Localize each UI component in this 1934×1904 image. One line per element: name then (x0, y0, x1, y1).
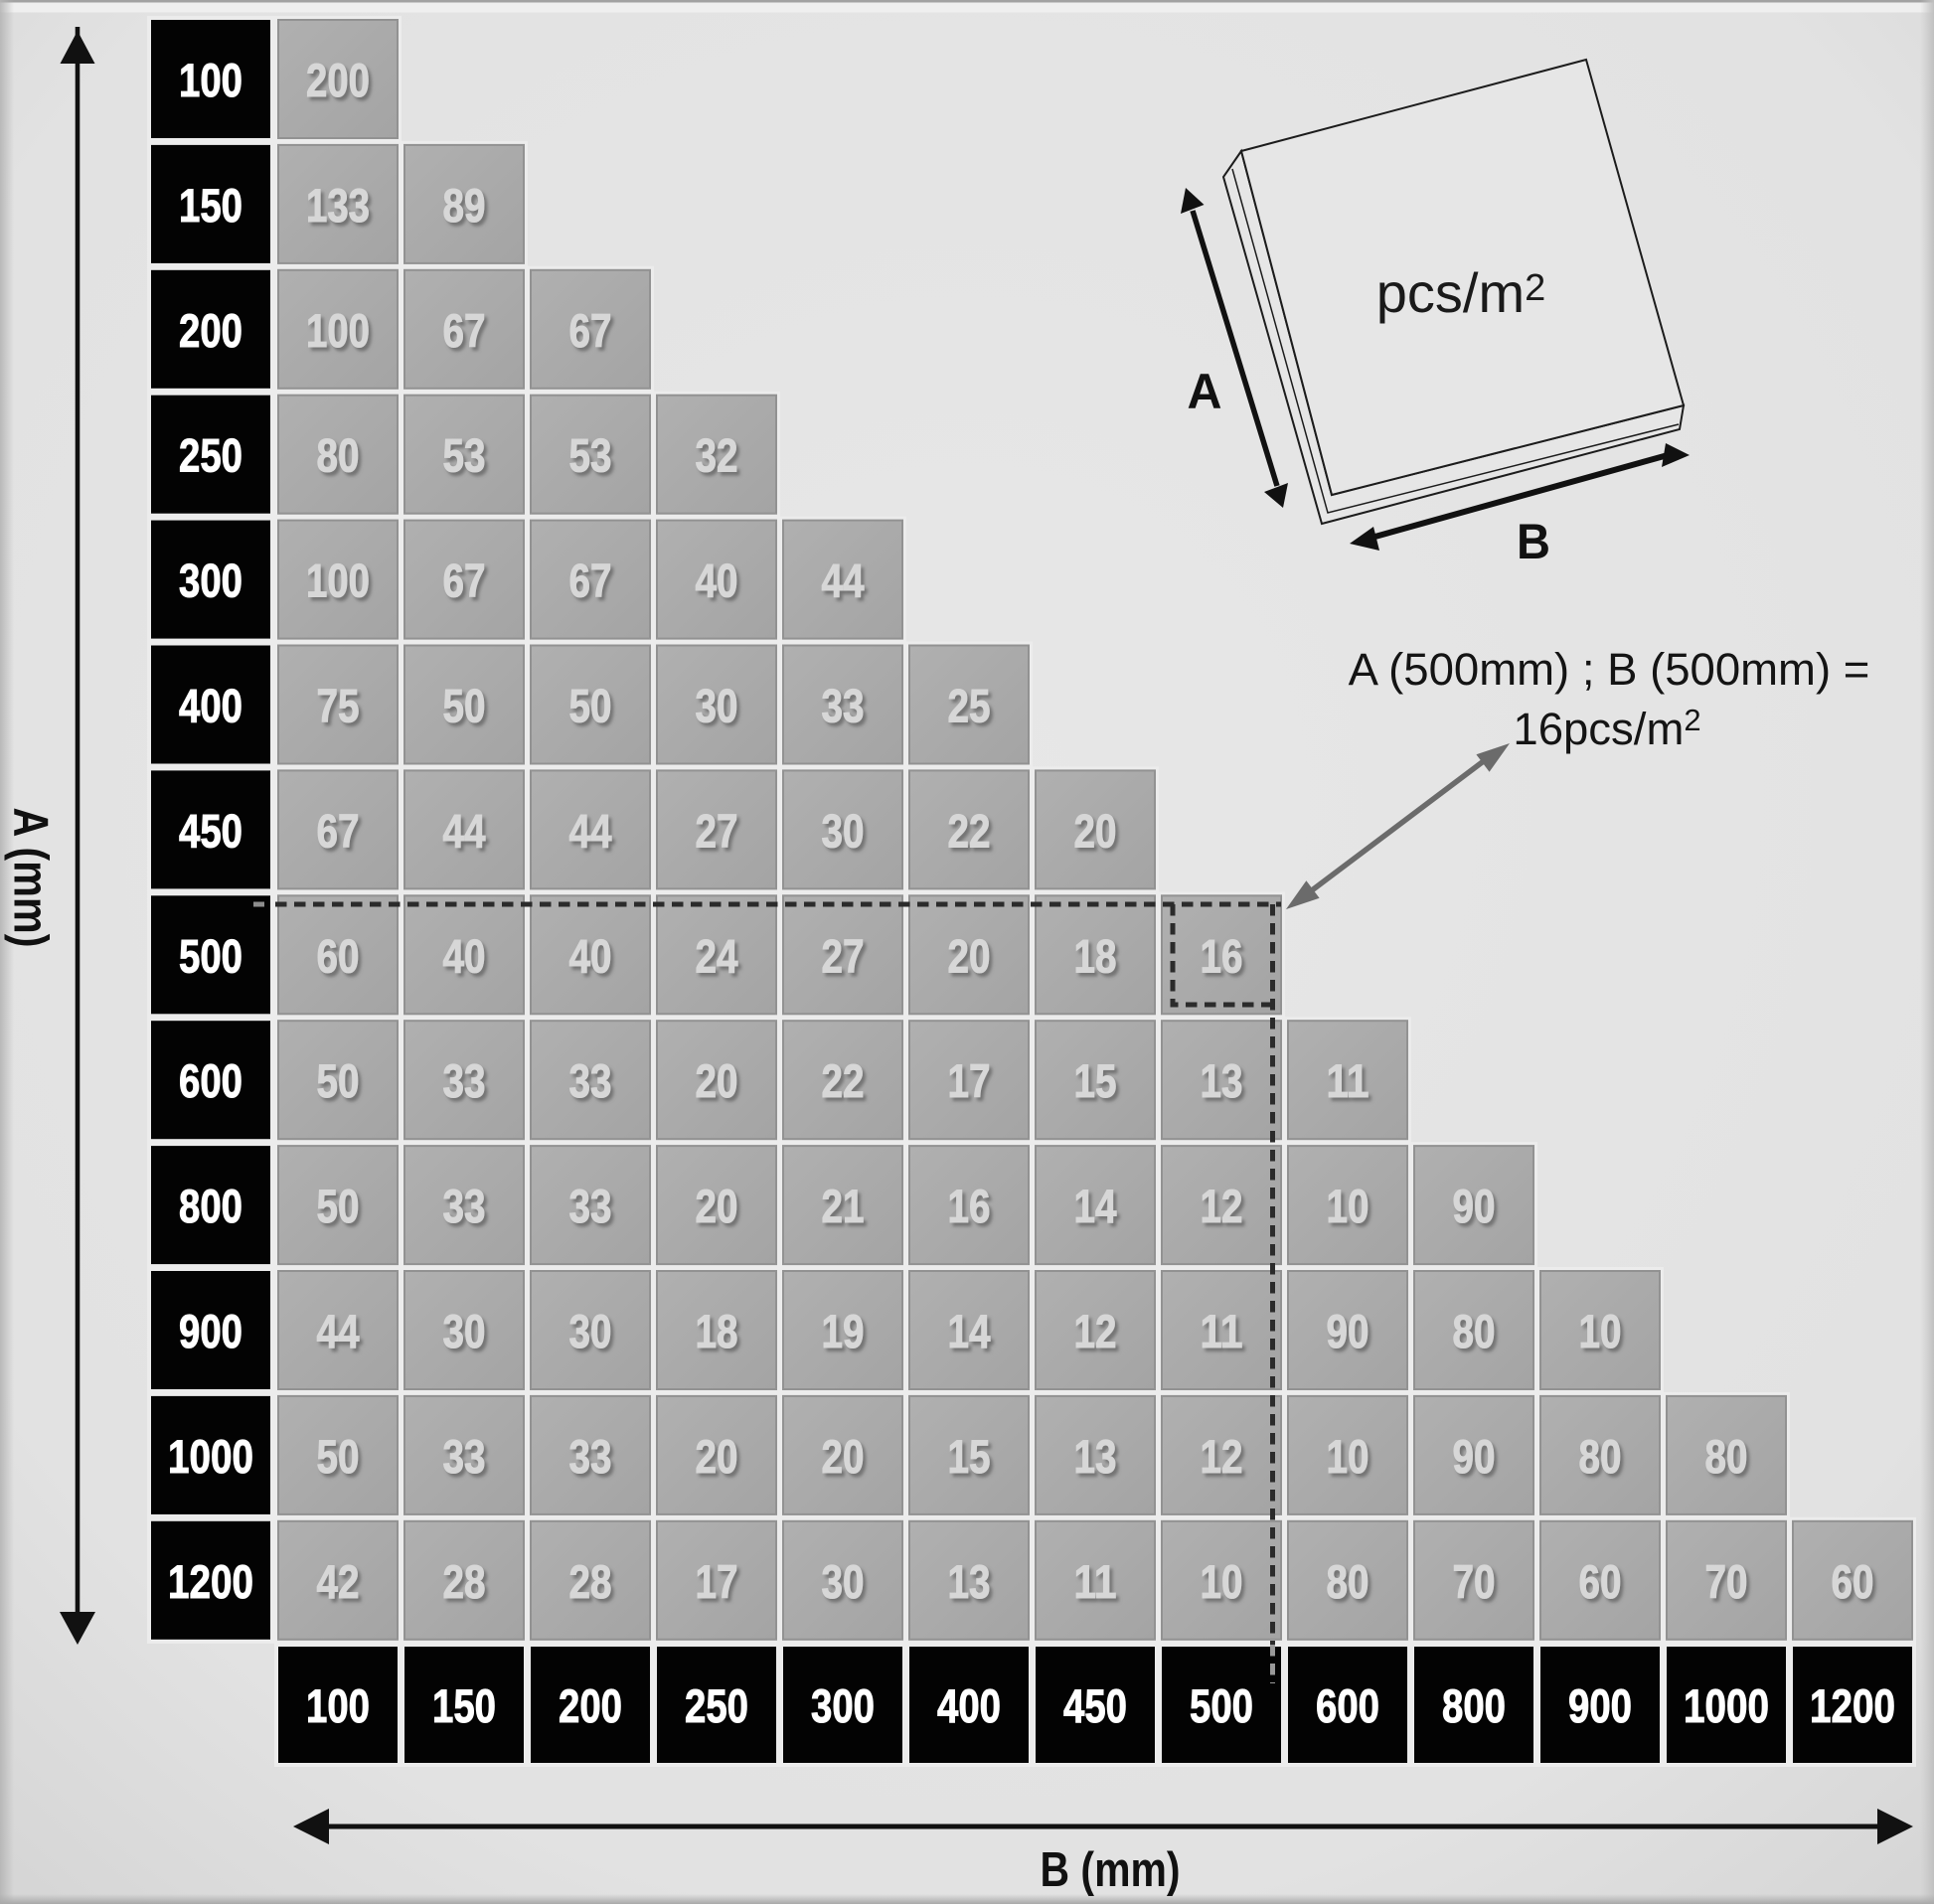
svg-text:20: 20 (696, 1430, 738, 1483)
svg-text:250: 250 (179, 429, 242, 482)
svg-text:500: 500 (179, 929, 242, 982)
svg-text:500: 500 (1190, 1679, 1253, 1732)
svg-text:27: 27 (822, 929, 865, 982)
svg-text:17: 17 (948, 1054, 991, 1107)
svg-text:11: 11 (1327, 1054, 1370, 1107)
svg-text:A (mm): A (mm) (4, 808, 59, 948)
svg-text:60: 60 (1832, 1555, 1874, 1608)
svg-text:44: 44 (443, 804, 486, 857)
svg-text:450: 450 (179, 804, 242, 857)
svg-text:30: 30 (569, 1305, 612, 1357)
svg-text:75: 75 (317, 680, 360, 732)
svg-text:300: 300 (811, 1679, 875, 1732)
svg-text:22: 22 (948, 804, 991, 857)
svg-text:42: 42 (317, 1555, 360, 1608)
svg-text:400: 400 (937, 1679, 1001, 1732)
svg-text:80: 80 (1579, 1430, 1622, 1483)
svg-text:89: 89 (443, 179, 486, 232)
svg-text:50: 50 (317, 1054, 360, 1107)
svg-text:12: 12 (1201, 1430, 1243, 1483)
svg-text:15: 15 (948, 1430, 991, 1483)
svg-text:1200: 1200 (1810, 1679, 1895, 1732)
svg-text:133: 133 (306, 179, 370, 232)
svg-text:150: 150 (432, 1679, 496, 1732)
svg-text:11: 11 (1201, 1305, 1243, 1357)
svg-text:30: 30 (443, 1305, 486, 1357)
svg-text:21: 21 (822, 1180, 865, 1232)
svg-text:33: 33 (569, 1054, 612, 1107)
svg-text:200: 200 (179, 304, 242, 357)
svg-text:30: 30 (696, 680, 738, 732)
svg-text:67: 67 (569, 555, 612, 607)
svg-text:44: 44 (569, 804, 612, 857)
svg-text:600: 600 (1316, 1679, 1379, 1732)
svg-text:80: 80 (1327, 1555, 1370, 1608)
svg-text:80: 80 (317, 429, 360, 482)
svg-text:18: 18 (696, 1305, 738, 1357)
svg-text:30: 30 (822, 1555, 865, 1608)
svg-text:90: 90 (1453, 1430, 1496, 1483)
svg-text:30: 30 (822, 804, 865, 857)
svg-text:67: 67 (443, 555, 486, 607)
svg-text:400: 400 (179, 680, 242, 732)
svg-text:12: 12 (1201, 1180, 1243, 1232)
svg-text:70: 70 (1453, 1555, 1496, 1608)
svg-text:28: 28 (443, 1555, 486, 1608)
svg-text:100: 100 (306, 1679, 370, 1732)
svg-text:33: 33 (569, 1430, 612, 1483)
svg-text:20: 20 (822, 1430, 865, 1483)
svg-text:50: 50 (317, 1430, 360, 1483)
svg-text:33: 33 (443, 1054, 486, 1107)
svg-text:67: 67 (443, 304, 486, 357)
svg-text:13: 13 (948, 1555, 991, 1608)
svg-text:16pcs/m2: 16pcs/m2 (1513, 703, 1700, 754)
svg-text:12: 12 (1074, 1305, 1117, 1357)
svg-text:10: 10 (1201, 1555, 1243, 1608)
svg-text:28: 28 (569, 1555, 612, 1608)
svg-text:50: 50 (443, 680, 486, 732)
svg-text:16: 16 (948, 1180, 991, 1232)
svg-text:90: 90 (1453, 1180, 1496, 1232)
svg-text:20: 20 (1074, 804, 1117, 857)
svg-text:1200: 1200 (168, 1555, 253, 1608)
svg-text:300: 300 (179, 555, 242, 607)
svg-text:80: 80 (1453, 1305, 1496, 1357)
svg-text:10: 10 (1327, 1180, 1370, 1232)
svg-text:14: 14 (1074, 1180, 1117, 1232)
svg-text:900: 900 (179, 1305, 242, 1357)
svg-text:53: 53 (569, 429, 612, 482)
svg-text:90: 90 (1327, 1305, 1370, 1357)
svg-text:50: 50 (569, 680, 612, 732)
svg-text:B: B (1517, 514, 1550, 569)
svg-text:A: A (1188, 364, 1222, 419)
svg-text:200: 200 (559, 1679, 622, 1732)
svg-text:80: 80 (1705, 1430, 1748, 1483)
svg-text:33: 33 (822, 680, 865, 732)
svg-text:40: 40 (569, 929, 612, 982)
svg-text:27: 27 (696, 804, 738, 857)
svg-text:13: 13 (1201, 1054, 1243, 1107)
svg-text:25: 25 (948, 680, 991, 732)
svg-text:B (mm): B (mm) (1041, 1842, 1181, 1897)
svg-text:150: 150 (179, 179, 242, 232)
svg-text:33: 33 (569, 1180, 612, 1232)
svg-text:60: 60 (317, 929, 360, 982)
svg-text:67: 67 (569, 304, 612, 357)
svg-text:40: 40 (696, 555, 738, 607)
svg-text:67: 67 (317, 804, 360, 857)
svg-text:22: 22 (822, 1054, 865, 1107)
svg-text:pcs/m2: pcs/m2 (1376, 261, 1546, 324)
svg-text:33: 33 (443, 1180, 486, 1232)
svg-text:10: 10 (1579, 1305, 1622, 1357)
svg-text:13: 13 (1074, 1430, 1117, 1483)
svg-text:53: 53 (443, 429, 486, 482)
svg-text:10: 10 (1327, 1430, 1370, 1483)
svg-text:17: 17 (696, 1555, 738, 1608)
svg-text:20: 20 (696, 1180, 738, 1232)
svg-text:60: 60 (1579, 1555, 1622, 1608)
svg-text:250: 250 (685, 1679, 748, 1732)
svg-text:800: 800 (1442, 1679, 1506, 1732)
svg-text:1000: 1000 (168, 1430, 253, 1483)
svg-text:44: 44 (822, 555, 865, 607)
svg-text:600: 600 (179, 1054, 242, 1107)
svg-text:70: 70 (1705, 1555, 1748, 1608)
svg-text:40: 40 (443, 929, 486, 982)
svg-text:100: 100 (306, 555, 370, 607)
svg-text:14: 14 (948, 1305, 991, 1357)
svg-text:33: 33 (443, 1430, 486, 1483)
svg-text:200: 200 (306, 54, 370, 106)
svg-text:20: 20 (948, 929, 991, 982)
svg-text:11: 11 (1074, 1555, 1117, 1608)
svg-text:900: 900 (1568, 1679, 1632, 1732)
svg-text:19: 19 (822, 1305, 865, 1357)
svg-text:100: 100 (179, 54, 242, 106)
svg-text:32: 32 (696, 429, 738, 482)
svg-text:A (500mm) ; B (500mm) =: A (500mm) ; B (500mm) = (1349, 644, 1870, 695)
svg-text:50: 50 (317, 1180, 360, 1232)
svg-text:15: 15 (1074, 1054, 1117, 1107)
svg-text:450: 450 (1063, 1679, 1127, 1732)
svg-text:16: 16 (1201, 929, 1243, 982)
svg-text:100: 100 (306, 304, 370, 357)
svg-text:24: 24 (696, 929, 738, 982)
svg-text:20: 20 (696, 1054, 738, 1107)
svg-text:44: 44 (317, 1305, 360, 1357)
svg-text:18: 18 (1074, 929, 1117, 982)
svg-text:800: 800 (179, 1180, 242, 1232)
svg-text:1000: 1000 (1684, 1679, 1769, 1732)
